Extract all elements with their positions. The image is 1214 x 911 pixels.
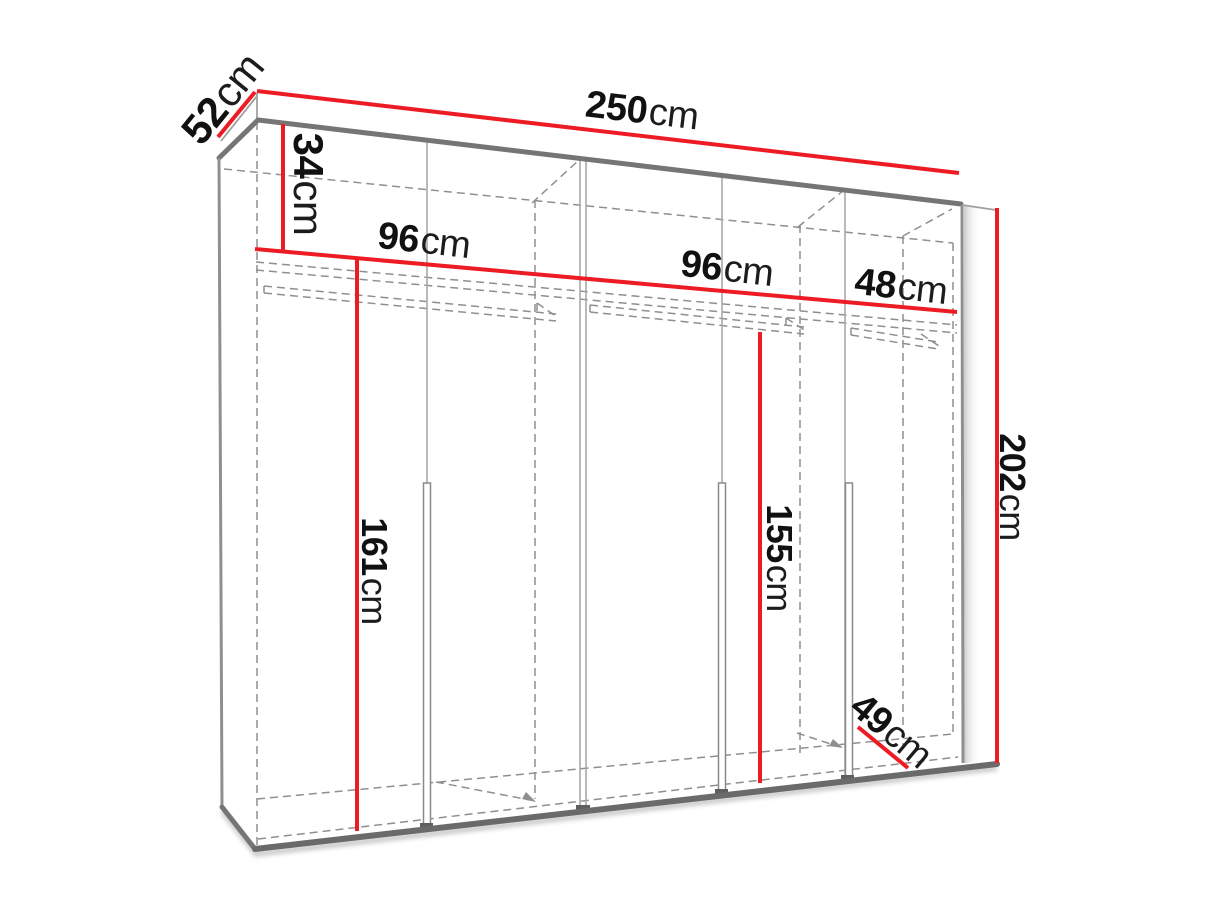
door-handle	[719, 483, 726, 793]
shelf-bottom-line	[256, 262, 957, 325]
label-left-interior-height: 161cm	[355, 517, 396, 625]
label-top-section-height: 34cm	[286, 133, 333, 236]
right-side-shading	[964, 206, 980, 763]
ceiling-depth-diagonal	[798, 190, 844, 227]
label-middle-interior-height: 155cm	[760, 504, 801, 612]
bottom-front-edge	[255, 764, 997, 849]
door-handle	[424, 483, 431, 827]
wardrobe-dimension-diagram: 250cm 52cm 34cm 96cm 96cm 48cm 202cm 161…	[0, 0, 1214, 911]
ceiling-depth-diagonal	[532, 160, 579, 203]
hanging-rod-right	[851, 328, 939, 349]
arrowhead-icon	[522, 792, 536, 802]
arrowhead-icon	[829, 739, 843, 748]
dimension-labels: 250cm 52cm 34cm 96cm 96cm 48cm 202cm 161…	[171, 43, 1033, 777]
left-edge	[219, 158, 222, 807]
label-height: 202cm	[993, 433, 1034, 541]
bottom-left-bevel-edge	[222, 807, 255, 849]
diagram-canvas: 250cm 52cm 34cm 96cm 96cm 48cm 202cm 161…	[0, 0, 1214, 911]
door-gap-lines	[427, 139, 845, 829]
floor-depth-diagonal	[436, 782, 530, 800]
right-edge	[962, 205, 963, 763]
ceiling-depth-diagonal	[903, 209, 952, 236]
door-handle	[846, 483, 853, 779]
hanging-rod-left	[264, 286, 557, 321]
label-interior-depth: 49cm	[842, 685, 940, 777]
